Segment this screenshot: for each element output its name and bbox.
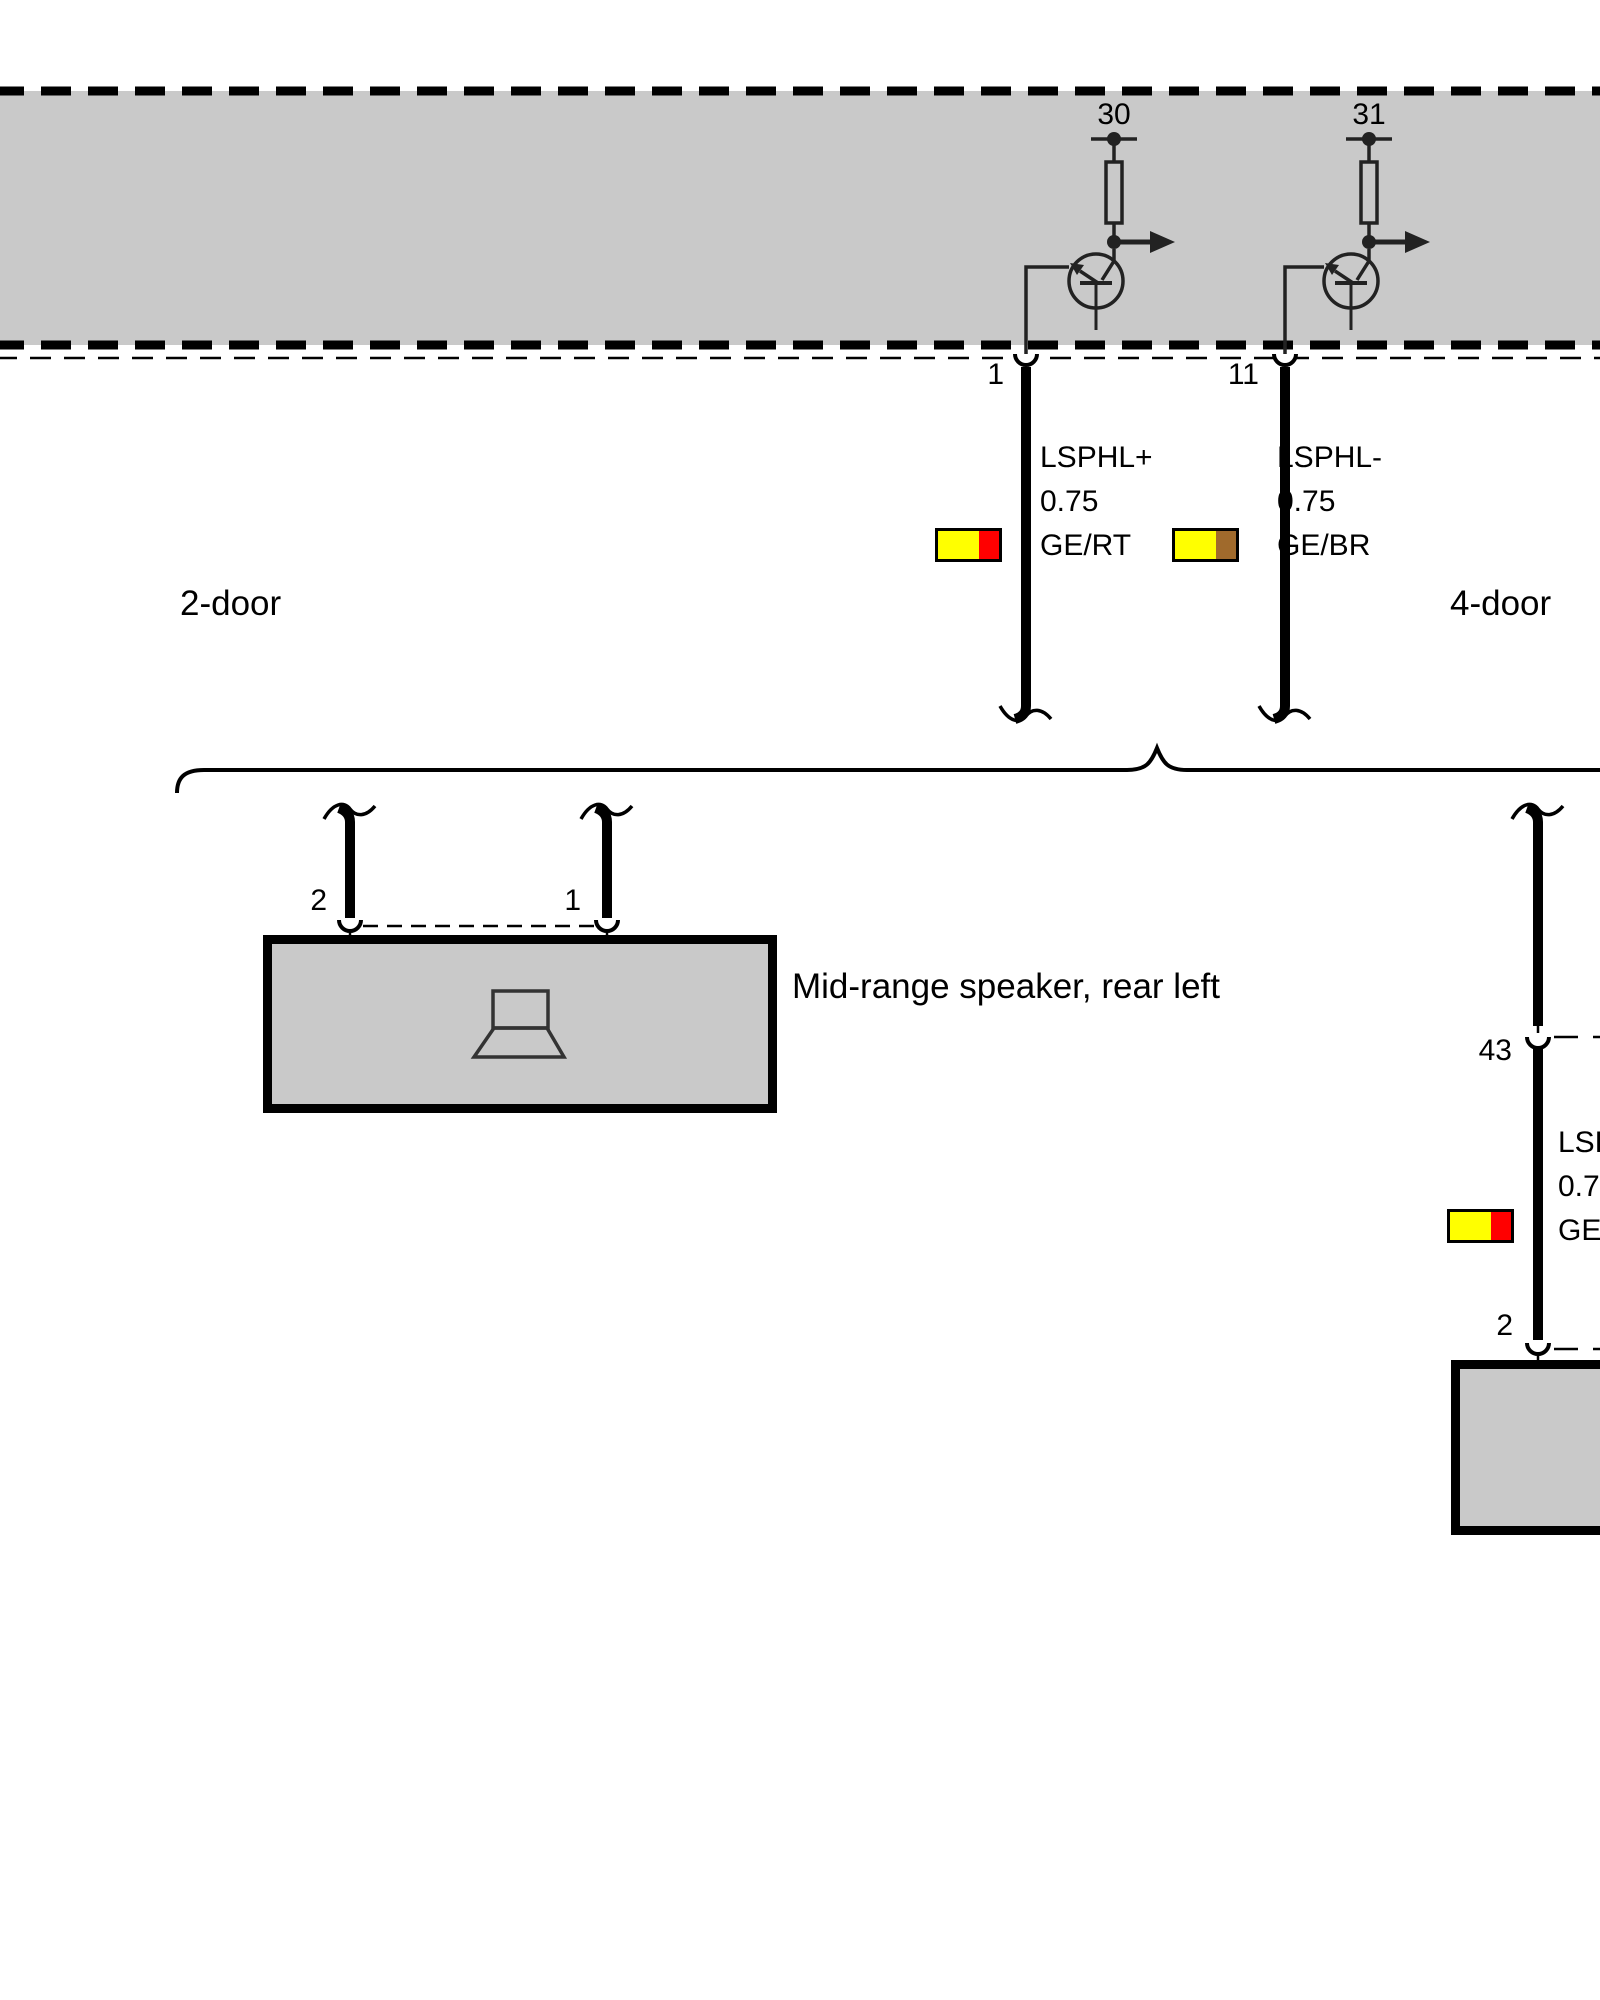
wire-gauge: 0.75 [1558,1165,1600,1209]
terminal-cup-43 [1527,1037,1549,1048]
wire-gauge: 0.75 [1040,480,1153,524]
speaker-pin-1-label: 1 [535,884,581,918]
swatch-yellow [938,531,979,559]
speaker-pin-2-label: 2 [281,884,327,918]
right-pin-2-label: 2 [1433,1309,1513,1343]
wire-lsphl-plus [1015,367,1026,719]
wire-break [1512,804,1563,819]
wire-break [1000,706,1051,721]
harness-brace [177,748,1600,793]
pin-11-label: 11 [1213,358,1259,392]
variant-2-door-label: 2-door [180,584,281,624]
wire-signal: LSPHL+ [1040,436,1153,480]
wire-break [324,804,375,819]
speaker-name-label: Mid-range speaker, rear left [792,967,1220,1007]
terminal-cup-right2 [1527,1343,1549,1354]
wire-label-branch: LSP 0.75 GE/ [1558,1121,1600,1253]
wire-code: GE/BR [1277,524,1382,568]
pin-43-label: 43 [1432,1034,1512,1068]
wire-code: GE/RT [1040,524,1153,568]
swatch-yellow [1175,531,1216,559]
wire-break [1259,706,1310,721]
wire-code: GE/ [1558,1209,1600,1253]
wire-branch-upper [1527,808,1538,1026]
swatch-yellow [1450,1212,1491,1240]
swatch-red [1491,1212,1511,1240]
terminal-30-label: 30 [1084,98,1144,132]
wire-signal: LSPHL- [1277,436,1382,480]
wire-speaker-1 [596,808,607,918]
terminal-cup-spk1 [596,920,618,931]
swatch-red [979,531,999,559]
terminal-cup-spk2 [339,920,361,931]
wire-gauge: 0.75 [1277,480,1382,524]
wire-color-swatch-ge-rt [935,528,1002,562]
wire-color-swatch-branch [1447,1209,1514,1243]
wire-color-swatch-ge-br [1172,528,1239,562]
variant-4-door-label: 4-door [1450,584,1551,624]
right-speaker-box [1451,1360,1600,1535]
pin-1-label: 1 [958,358,1004,392]
terminal-cup-pin1 [1015,354,1037,365]
terminal-31-label: 31 [1339,98,1399,132]
terminal-cup-pin11 [1274,354,1296,365]
wire-speaker-2 [339,808,350,918]
wire-label-lsphl-minus: LSPHL- 0.75 GE/BR [1277,436,1382,568]
wire-label-lsphl-plus: LSPHL+ 0.75 GE/RT [1040,436,1153,568]
wire-signal: LSP [1558,1121,1600,1165]
wire-break [581,804,632,819]
wiring-diagram-page: 30 31 1 11 LSPHL+ 0.75 GE/RT LSPHL- 0.75… [0,0,1600,2000]
swatch-brown [1216,531,1236,559]
mid-range-speaker-box [263,935,777,1113]
